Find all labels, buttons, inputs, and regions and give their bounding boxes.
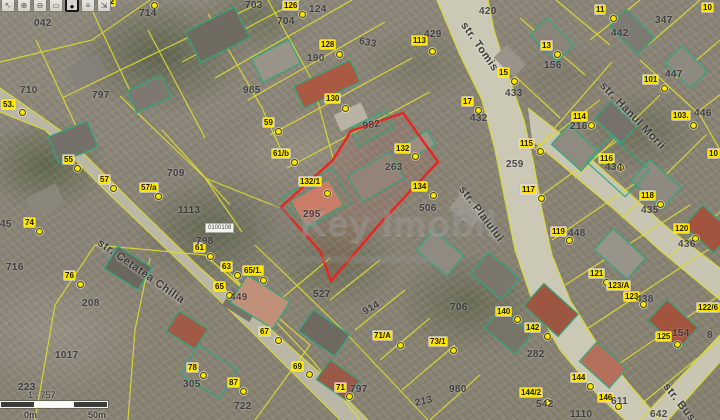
address-marker[interactable]: 114: [572, 112, 587, 121]
address-marker[interactable]: 65: [214, 282, 225, 291]
address-marker-dot[interactable]: [610, 15, 617, 22]
address-marker-dot[interactable]: [200, 372, 207, 379]
parcel-number: 433: [505, 88, 523, 99]
map-canvas[interactable]: 53.555757/a7476616365/1.6578877121265961…: [0, 0, 720, 420]
parcel-number: 447: [665, 69, 683, 80]
address-marker[interactable]: 101: [643, 75, 658, 84]
address-marker[interactable]: 130: [325, 94, 340, 103]
parcel-number: 714: [139, 8, 157, 19]
scale-ratio: 1 : 757: [28, 390, 56, 400]
map-toolbar: ↖⊕⊖▭●≡⇲: [1, 0, 111, 12]
parcel-number: 436: [678, 239, 696, 250]
address-marker[interactable]: 128: [320, 40, 335, 49]
parcel-number: 710: [20, 85, 38, 96]
address-marker[interactable]: 117: [521, 185, 536, 194]
address-marker[interactable]: 132: [395, 144, 410, 153]
parcel-number: 1113: [178, 205, 200, 216]
address-marker[interactable]: 123/A: [607, 281, 630, 290]
address-marker-dot[interactable]: [77, 281, 84, 288]
address-marker-dot[interactable]: [299, 11, 306, 18]
parcel-number: 703: [245, 0, 263, 11]
parcel-number: 506: [419, 203, 437, 214]
address-marker-dot[interactable]: [260, 277, 267, 284]
address-marker[interactable]: 65/1.: [243, 266, 263, 275]
address-marker[interactable]: 10: [702, 3, 713, 12]
address-marker-dot[interactable]: [342, 105, 349, 112]
address-marker[interactable]: 71: [335, 383, 346, 392]
address-marker-dot[interactable]: [537, 148, 544, 155]
address-marker[interactable]: 67: [259, 327, 270, 336]
export-button[interactable]: ⇲: [97, 0, 111, 12]
address-marker[interactable]: 57: [99, 175, 110, 184]
address-marker[interactable]: 140: [496, 307, 511, 316]
address-marker[interactable]: 125: [656, 332, 671, 341]
parcel-number: 438: [636, 294, 654, 305]
address-marker[interactable]: 61/b: [272, 149, 290, 158]
address-marker[interactable]: 15: [498, 68, 509, 77]
parcel-number: 042: [34, 18, 52, 29]
address-marker-dot[interactable]: [538, 195, 545, 202]
parcel-number: 982: [362, 119, 381, 132]
address-marker[interactable]: 73/1: [429, 337, 447, 346]
address-marker-dot[interactable]: [155, 193, 162, 200]
scale-label-left: 0m: [24, 410, 37, 420]
parcel-number: 706: [450, 302, 468, 313]
parcel-number: 980: [449, 384, 467, 395]
address-marker[interactable]: 53.: [2, 100, 15, 109]
zoom-in-button[interactable]: ⊕: [17, 0, 31, 12]
parcel-number: 442: [611, 28, 629, 39]
parcel-number: 448: [568, 228, 586, 239]
address-marker-dot[interactable]: [234, 272, 241, 279]
address-marker[interactable]: 134: [412, 182, 427, 191]
parcel-number: 190: [307, 53, 325, 64]
address-marker[interactable]: 122/6: [697, 303, 719, 312]
address-marker-dot[interactable]: [588, 122, 595, 129]
address-marker[interactable]: 71/A: [373, 331, 392, 340]
parcel-number: 45: [0, 219, 12, 230]
scale-label-right: 50m: [88, 410, 106, 420]
address-marker[interactable]: 103.: [672, 111, 690, 120]
parcel-number: 709: [167, 168, 185, 179]
parcel-number: 208: [82, 298, 100, 309]
address-marker-dot[interactable]: [430, 192, 437, 199]
address-marker-dot[interactable]: [412, 153, 419, 160]
address-marker[interactable]: 69: [292, 362, 303, 371]
parcel-number: 797: [92, 90, 110, 101]
parcel-number: 722: [234, 401, 252, 412]
address-marker-dot[interactable]: [661, 85, 668, 92]
address-marker[interactable]: 63: [221, 262, 232, 271]
parcel-number: 295: [303, 209, 321, 220]
address-marker[interactable]: 142: [525, 323, 540, 332]
parcel-number: 154: [672, 328, 690, 339]
parcel-number: 449: [230, 292, 248, 303]
street-name: str. Plaiului: [456, 184, 506, 244]
parcel-number: 282: [527, 349, 545, 360]
select-tool-button[interactable]: ↖: [1, 0, 15, 12]
parcel-number: 704: [277, 16, 295, 27]
info-tool-button[interactable]: ●: [65, 0, 79, 12]
parcel-number: 435: [641, 205, 659, 216]
address-marker-dot[interactable]: [554, 51, 561, 58]
address-marker[interactable]: 11: [595, 5, 605, 14]
address-marker-dot[interactable]: [74, 165, 81, 172]
parcel-number: 429: [424, 29, 442, 40]
parcel-number: 259: [506, 159, 524, 170]
address-marker-dot[interactable]: [110, 185, 117, 192]
zoom-extent-button[interactable]: ▭: [49, 0, 63, 12]
address-marker[interactable]: 118: [640, 191, 655, 200]
parcel-number: 347: [655, 15, 673, 26]
address-marker[interactable]: 115: [519, 139, 534, 148]
address-marker-dot[interactable]: [514, 316, 521, 323]
address-marker[interactable]: 121: [589, 269, 604, 278]
address-marker-dot[interactable]: [544, 333, 551, 340]
address-marker[interactable]: 76: [64, 271, 75, 280]
parcel-number: 213: [414, 394, 433, 408]
address-marker-dot[interactable]: [207, 253, 214, 260]
scale-bar: [0, 401, 108, 408]
parcel-number: 914: [361, 299, 382, 317]
parcel-number: 1110: [570, 409, 592, 420]
address-marker[interactable]: 78: [187, 363, 198, 372]
address-marker[interactable]: 57/a: [140, 183, 158, 192]
address-marker[interactable]: 144/2: [520, 388, 542, 397]
address-marker-dot[interactable]: [587, 383, 594, 390]
parcel-number: 420: [479, 6, 497, 17]
address-marker[interactable]: 74: [24, 218, 35, 227]
street-name: str. Tomis: [458, 20, 501, 74]
address-marker[interactable]: 144: [571, 373, 586, 382]
parcel-number: 8: [707, 330, 713, 341]
address-marker-dot[interactable]: [429, 48, 436, 55]
address-marker-dot[interactable]: [306, 371, 313, 378]
zoom-out-button[interactable]: ⊖: [33, 0, 47, 12]
parcel-number: 611: [611, 396, 628, 407]
address-marker-dot[interactable]: [336, 51, 343, 58]
address-marker-dot[interactable]: [19, 109, 26, 116]
address-marker-dot[interactable]: [36, 228, 43, 235]
address-marker-dot[interactable]: [450, 347, 457, 354]
parcel-number: 305: [183, 379, 201, 390]
address-marker[interactable]: 120: [674, 224, 689, 233]
parcel-number: 985: [243, 85, 261, 96]
address-marker[interactable]: 10: [708, 149, 719, 158]
address-marker-dot[interactable]: [275, 128, 282, 135]
parcel-number: 124: [309, 4, 327, 15]
address-marker[interactable]: 132/1: [299, 177, 321, 186]
parcel-number: 263: [385, 162, 403, 173]
parcel-number: 434: [605, 162, 623, 173]
address-marker-dot[interactable]: [397, 342, 404, 349]
address-marker[interactable]: 55: [63, 155, 74, 164]
parcel-number: 633: [358, 36, 377, 50]
street-name: str. Cetatea Chilia: [95, 237, 187, 306]
address-marker[interactable]: 126: [283, 1, 298, 10]
address-marker[interactable]: 13: [541, 41, 552, 50]
parcel-number: 216: [570, 121, 588, 132]
parcel-number: 156: [544, 60, 562, 71]
address-marker[interactable]: 17: [462, 97, 473, 106]
map-labels-layer: 53.555757/a7476616365/1.6578877121265961…: [0, 0, 720, 420]
address-marker-dot[interactable]: [240, 388, 247, 395]
parcel-number: 798: [196, 236, 214, 247]
parcel-number: 446: [694, 108, 712, 119]
address-marker[interactable]: 119: [551, 227, 566, 236]
parcel-number: 1017: [55, 350, 78, 361]
address-marker[interactable]: 59: [263, 118, 274, 127]
parcel-number: 432: [470, 113, 488, 124]
address-marker[interactable]: 87: [228, 378, 239, 387]
address-marker-dot[interactable]: [291, 159, 298, 166]
address-marker-dot[interactable]: [275, 337, 282, 344]
legend-button[interactable]: ≡: [81, 0, 95, 12]
parcel-number: 642: [650, 409, 668, 420]
parcel-number: 542: [536, 399, 554, 410]
parcel-number: 527: [313, 289, 331, 300]
address-marker-dot[interactable]: [690, 122, 697, 129]
street-name: str. Hanul Morii: [597, 80, 668, 152]
street-name: str. Busuioc: [661, 381, 714, 420]
parcel-number: 797: [350, 384, 368, 395]
address-marker-dot[interactable]: [324, 190, 331, 197]
parcel-number: 716: [6, 262, 24, 273]
address-marker-dot[interactable]: [511, 78, 518, 85]
address-marker-dot[interactable]: [674, 341, 681, 348]
